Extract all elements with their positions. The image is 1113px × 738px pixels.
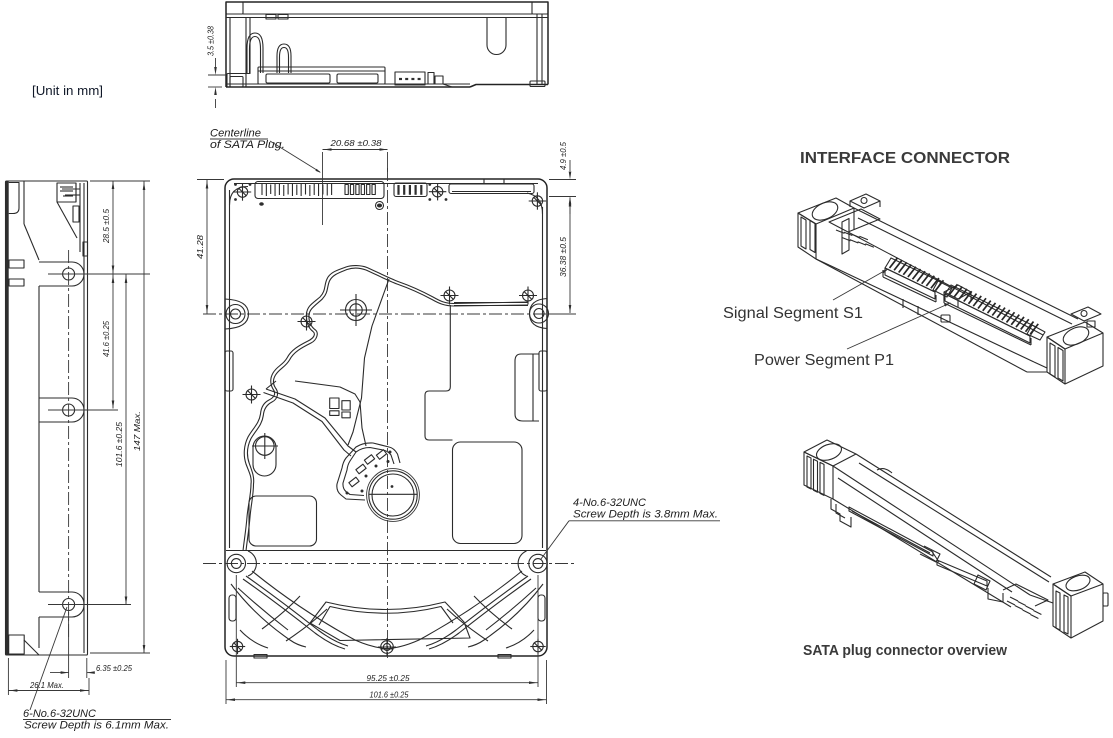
svg-text:4-No.6-32UNC: 4-No.6-32UNC [573, 497, 646, 509]
svg-text:95.25 ±0.25: 95.25 ±0.25 [367, 673, 410, 683]
svg-text:Power Segment P1: Power Segment P1 [754, 352, 894, 369]
svg-text:28.5 ±0.5: 28.5 ±0.5 [101, 209, 111, 244]
svg-text:INTERFACE CONNECTOR: INTERFACE CONNECTOR [800, 150, 1010, 167]
svg-text:SATA plug connector overview: SATA plug connector overview [803, 642, 1007, 659]
svg-text:101.6 ±0.25: 101.6 ±0.25 [114, 422, 124, 467]
svg-text:6.35 ±0.25: 6.35 ±0.25 [96, 663, 132, 673]
svg-text:Screw Depth is 6.1mm Max.: Screw Depth is 6.1mm Max. [24, 720, 169, 732]
svg-text:Signal Segment S1: Signal Segment S1 [723, 305, 863, 322]
svg-text:Centerline: Centerline [210, 128, 261, 140]
svg-text:147 Max.: 147 Max. [132, 411, 142, 451]
svg-text:101.6 ±0.25: 101.6 ±0.25 [370, 690, 409, 700]
svg-text:4.9 ±0.5: 4.9 ±0.5 [558, 142, 568, 170]
svg-text:Screw Depth is 3.8mm Max.: Screw Depth is 3.8mm Max. [573, 509, 718, 521]
svg-text:41.28: 41.28 [195, 235, 205, 259]
svg-text:20.68 ±0.38: 20.68 ±0.38 [329, 138, 381, 148]
svg-text:6-No.6-32UNC: 6-No.6-32UNC [23, 708, 96, 720]
svg-text:[Unit in mm]: [Unit in mm] [32, 83, 103, 98]
svg-text:41.6 ±0.25: 41.6 ±0.25 [101, 321, 111, 357]
svg-text:3.5 ±0.38: 3.5 ±0.38 [206, 26, 216, 56]
svg-text:26.1 Max.: 26.1 Max. [29, 680, 64, 690]
svg-text:36.38 ±0.5: 36.38 ±0.5 [558, 237, 568, 277]
svg-text:of SATA Plug.: of SATA Plug. [210, 139, 285, 151]
